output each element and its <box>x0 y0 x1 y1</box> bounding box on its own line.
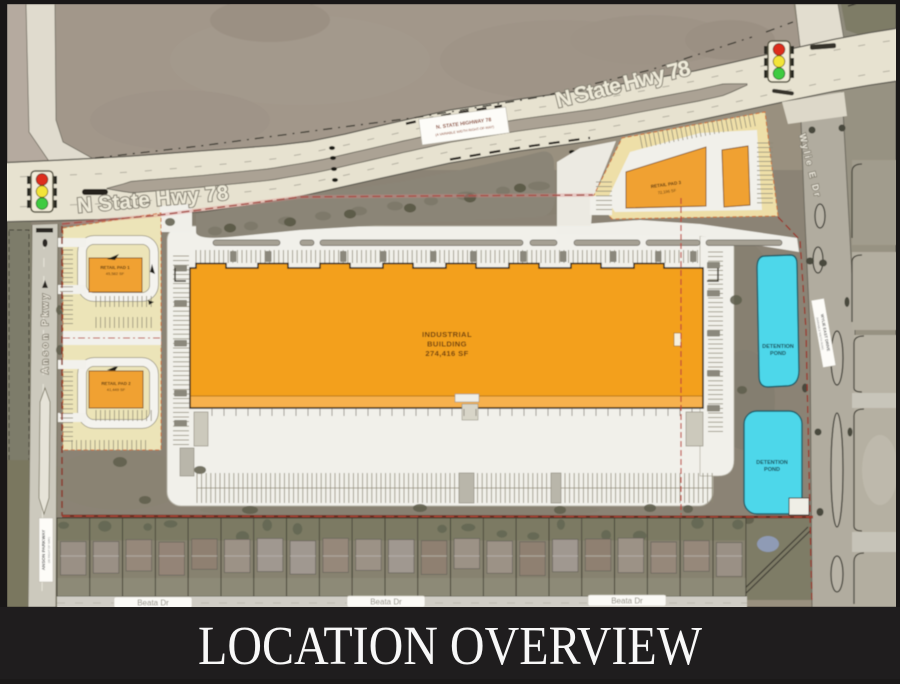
svg-text:LOCATION OVERVIEW: LOCATION OVERVIEW <box>198 615 702 676</box>
svg-text:POND: POND <box>770 351 786 357</box>
svg-text:274,416 SF: 274,416 SF <box>425 349 468 358</box>
svg-text:DETENTION: DETENTION <box>762 344 794 350</box>
svg-text:DETENTION: DETENTION <box>756 460 788 466</box>
svg-text:RETAIL PAD 1: RETAIL PAD 1 <box>100 265 130 270</box>
svg-text:RETAIL PAD 2: RETAIL PAD 2 <box>101 381 131 386</box>
svg-text:INDUSTRIAL: INDUSTRIAL <box>422 330 472 339</box>
svg-text:45,582 SF: 45,582 SF <box>106 271 125 276</box>
svg-text:Beata Dr: Beata Dr <box>611 597 643 606</box>
svg-text:ANSON PARKWAY: ANSON PARKWAY <box>41 530 46 571</box>
svg-text:(60 RIGHT OF WAY): (60 RIGHT OF WAY) <box>47 537 51 563</box>
svg-text:41,449 SF: 41,449 SF <box>107 387 126 392</box>
svg-text:POND: POND <box>764 467 780 473</box>
svg-text:BUILDING: BUILDING <box>427 340 467 349</box>
svg-text:Beata Dr: Beata Dr <box>137 599 169 608</box>
svg-text:Beata Dr: Beata Dr <box>370 598 402 607</box>
